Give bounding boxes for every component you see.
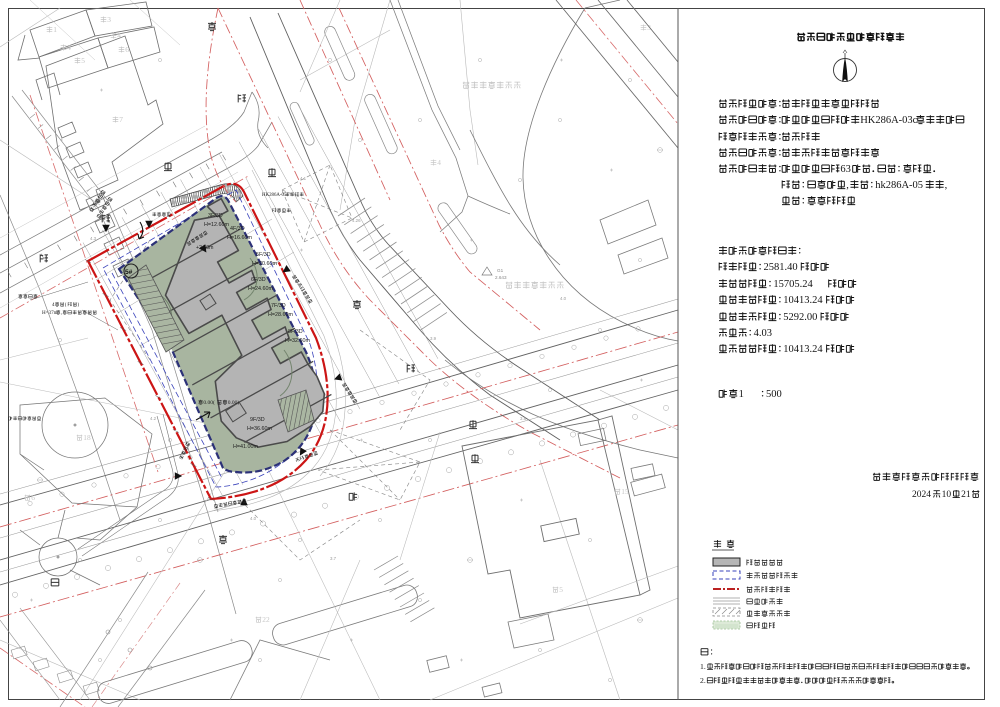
svg-text:1: 1	[739, 389, 744, 400]
svg-text:,: ,	[945, 180, 948, 191]
svg-text:7: 7	[119, 115, 123, 124]
svg-text:63: 63	[840, 164, 851, 175]
svg-text:,: ,	[61, 310, 62, 316]
svg-text:4: 4	[437, 158, 441, 167]
svg-text:4.0: 4.0	[560, 296, 567, 301]
svg-text:10: 10	[942, 490, 952, 500]
svg-text:hk286A-05: hk286A-05	[875, 180, 923, 191]
svg-text:18: 18	[83, 433, 91, 442]
svg-text:2.: 2.	[700, 676, 706, 685]
svg-text:1: 1	[53, 25, 57, 34]
svg-text:5: 5	[81, 56, 85, 65]
svg-text:5#: 5#	[125, 269, 133, 276]
svg-text:5292.00: 5292.00	[783, 312, 817, 323]
svg-text:H=12.60m: H=12.60m	[204, 222, 230, 228]
svg-text:6: 6	[31, 493, 35, 502]
svg-text:10413.24: 10413.24	[783, 344, 823, 355]
svg-text:,: ,	[846, 180, 849, 191]
svg-text:H=24.60m: H=24.60m	[248, 286, 274, 292]
svg-text:3.7: 3.7	[330, 556, 337, 561]
svg-text:H=20.60m: H=20.60m	[252, 261, 278, 267]
svg-text:15: 15	[621, 487, 629, 496]
svg-text:10413.24: 10413.24	[783, 295, 823, 306]
svg-text:HK286A-05: HK286A-05	[262, 193, 287, 198]
svg-text:0.00): 0.00)	[228, 399, 240, 406]
svg-text:3.9: 3.9	[430, 336, 437, 341]
svg-text:15705.24: 15705.24	[773, 279, 813, 290]
svg-text:4.3: 4.3	[90, 236, 97, 241]
svg-text:3F/3D: 3F/3D	[208, 213, 223, 219]
svg-text:H=16.60m: H=16.60m	[227, 235, 253, 241]
svg-text:HK286A-03c: HK286A-03c	[860, 115, 917, 126]
svg-text:6F/3D: 6F/3D	[251, 277, 266, 283]
svg-text:4.26: 4.26	[352, 218, 361, 223]
svg-text:4.2: 4.2	[150, 416, 157, 421]
svg-text:H=41.00m: H=41.00m	[233, 444, 259, 450]
svg-text:2581.40: 2581.40	[764, 262, 798, 273]
svg-text:): )	[78, 301, 80, 308]
svg-text:4: 4	[67, 43, 71, 52]
svg-text:2024: 2024	[912, 490, 931, 500]
svg-text:3: 3	[107, 15, 111, 24]
svg-text:4.0: 4.0	[250, 516, 257, 521]
svg-text:H=36.60m: H=36.60m	[247, 426, 273, 432]
svg-text:6: 6	[125, 45, 129, 54]
svg-text:H=37m: H=37m	[42, 310, 58, 316]
svg-text:4: 4	[117, 31, 121, 40]
svg-text:5F/3D: 5F/3D	[256, 252, 271, 258]
svg-text:5: 5	[559, 585, 563, 594]
svg-text:22: 22	[262, 615, 270, 624]
svg-text:H=28.60m: H=28.60m	[268, 312, 294, 318]
svg-text:2.643: 2.643	[495, 275, 507, 280]
svg-text:8F/3D: 8F/3D	[288, 329, 303, 335]
svg-text:H=32.60m: H=32.60m	[285, 338, 311, 344]
svg-text:1.: 1.	[700, 662, 706, 671]
svg-text:21: 21	[961, 490, 971, 500]
svg-text:(: (	[65, 301, 67, 308]
svg-text:4.03: 4.03	[754, 328, 772, 339]
svg-text:G1: G1	[497, 268, 504, 273]
svg-text:7F/3D: 7F/3D	[271, 303, 286, 309]
svg-text:3.8: 3.8	[520, 416, 527, 421]
svg-text:4F/3D: 4F/3D	[230, 226, 245, 232]
svg-text:4.1: 4.1	[300, 176, 307, 181]
svg-text:9F/3D: 9F/3D	[250, 417, 265, 423]
svg-text:500: 500	[766, 389, 782, 400]
svg-text:0.00(: 0.00(	[203, 399, 215, 406]
